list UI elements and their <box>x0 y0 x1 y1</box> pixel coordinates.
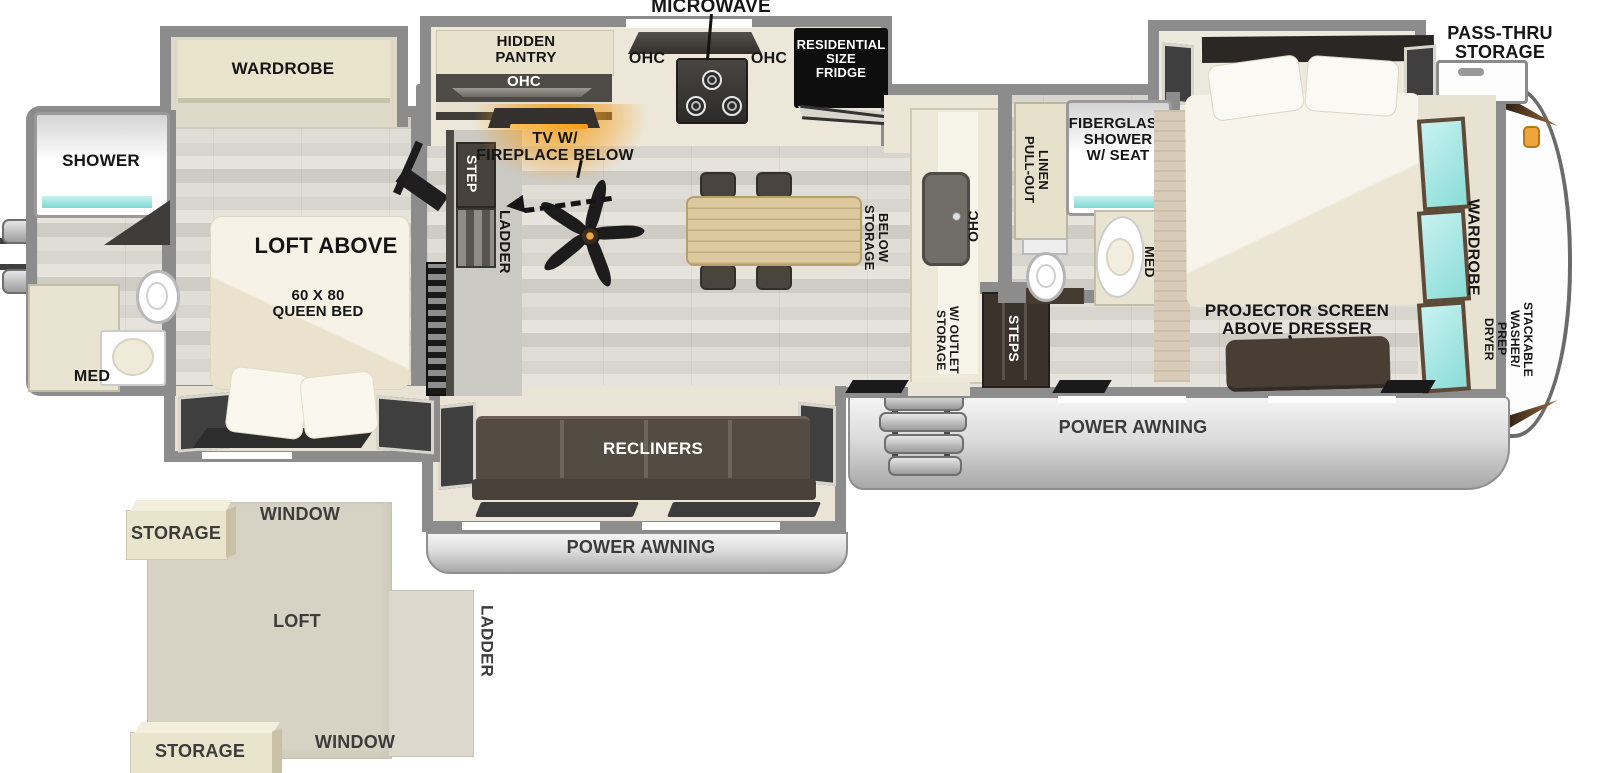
ohc-right-label: OHC <box>746 50 792 67</box>
fireplace-flame-strip <box>510 124 588 129</box>
tv-fireplace-label: TV W/ FIREPLACE BELOW <box>462 130 648 165</box>
fridge-label: RESIDENTIAL SIZE FRIDGE <box>794 38 888 80</box>
loft-storage-box-bottom-face <box>134 722 280 733</box>
loft-storage-box-top-side <box>226 506 236 558</box>
sill-strip <box>1268 396 1396 403</box>
recliners-window-left <box>438 402 476 490</box>
fan-direction-arrowhead <box>505 195 525 215</box>
mid-shower-threshold <box>1074 196 1160 208</box>
loft-window-top-label: WINDOW <box>250 505 350 524</box>
dining-chair <box>756 172 792 198</box>
queen-pillow <box>299 370 379 439</box>
pass-thru-handle <box>1458 68 1484 76</box>
loft-above-label: LOFT ABOVE <box>240 234 412 258</box>
projector-screen-label: PROJECTOR SCREEN ABOVE DRESSER <box>1188 302 1406 339</box>
ohc-island-label: OHC <box>966 190 981 262</box>
wardrobe-rear-label: WARDROBE <box>218 60 348 78</box>
island-sink <box>922 172 970 266</box>
step-treads <box>456 208 496 268</box>
stove-burner <box>686 96 706 116</box>
recliner-footmat <box>475 502 639 517</box>
bottom-wall-window <box>1052 380 1112 393</box>
pull-out-linen-label: PULL-OUT LINEN <box>1022 112 1050 228</box>
door-threshold <box>908 382 970 396</box>
loft-window-bottom-label: WINDOW <box>300 733 410 752</box>
wardrobe-mirror-door <box>1417 208 1471 303</box>
recliner-seat-band <box>472 479 816 500</box>
island-faucet <box>952 212 961 221</box>
rear-shower-threshold <box>42 196 152 208</box>
stackable-washer-label: STACKABLE WASHER/ <box>1508 292 1534 386</box>
slide-window-strip <box>462 522 600 530</box>
fiberglass-shower-label: FIBERGLASS SHOWER W/ SEAT <box>1068 116 1168 165</box>
slide-window-strip <box>642 522 780 530</box>
master-bedding <box>1185 93 1423 307</box>
slide-window-strip <box>626 19 752 28</box>
loft-ladder-label: LADDER <box>477 596 495 686</box>
queen-pillow <box>224 365 309 440</box>
dining-table <box>686 196 862 266</box>
steps-label: STEPS <box>1006 306 1021 370</box>
stove-burner <box>722 96 742 116</box>
loft-storage-top-label: STORAGE <box>126 524 226 543</box>
pass-thru-storage-label: PASS-THRU STORAGE <box>1440 24 1560 63</box>
bath-wall-left <box>998 92 1012 294</box>
power-awning-living-label: POWER AWNING <box>556 538 726 557</box>
mid-vanity-basin <box>1106 238 1134 276</box>
loft-inset-extension <box>389 590 474 757</box>
med-rear-label: MED <box>62 368 122 385</box>
rear-bed-window-right <box>376 395 434 454</box>
dresser <box>1225 336 1390 392</box>
interior-steps-divider <box>1024 296 1027 380</box>
loft-storage-box-bottom-side <box>272 728 282 773</box>
entry-step <box>884 434 964 454</box>
queen-bed-label: 60 X 80 QUEEN BED <box>258 288 378 320</box>
slide-window-strip <box>202 452 292 459</box>
interior-steps-divider <box>1002 296 1005 380</box>
loft-storage-box-top-face <box>130 500 232 511</box>
dining-chair <box>700 264 736 290</box>
front-cap-handle <box>1523 126 1540 148</box>
dining-chair <box>700 172 736 198</box>
ohc-pantry-label: OHC <box>494 74 554 90</box>
loft-label: LOFT <box>262 612 332 631</box>
bottom-wall-window <box>845 380 909 393</box>
loft-storage-bottom-label: STORAGE <box>140 742 260 761</box>
entry-step <box>879 412 967 432</box>
sill-strip <box>1058 396 1186 403</box>
hidden-pantry-label: HIDDEN PANTRY <box>466 34 586 66</box>
wardrobe-mirror-door <box>1417 116 1471 211</box>
entry-step <box>888 456 962 476</box>
fan-hub <box>580 226 600 246</box>
wardrobe-front-label: WARDROBE <box>1464 182 1481 312</box>
recliners-label: RECLINERS <box>588 440 718 458</box>
rear-toilet-bowl <box>146 282 168 310</box>
storage-below-label: STORAGE BELOW <box>862 184 890 292</box>
storage-outlet-label: STORAGE W/ OUTLET <box>934 294 960 386</box>
master-pillow <box>1304 55 1400 117</box>
recliner-divider <box>560 420 564 478</box>
shower-rear-label: SHOWER <box>46 152 156 170</box>
stove-burner <box>702 70 722 90</box>
ohc-left-label: OHC <box>624 50 670 67</box>
recliner-divider <box>728 420 732 478</box>
recliner-footmat <box>667 502 821 517</box>
power-awning-door-label: POWER AWNING <box>1048 418 1218 437</box>
dryer-prep-label: DRYER PREP <box>1482 308 1508 370</box>
bottom-wall-window <box>1380 380 1436 393</box>
dining-chair <box>756 264 792 290</box>
mid-toilet-bowl <box>1036 264 1056 288</box>
rv-floorplan: POWER AWNING WARDROBE HIDDEN PANTRY OHC … <box>0 0 1600 773</box>
